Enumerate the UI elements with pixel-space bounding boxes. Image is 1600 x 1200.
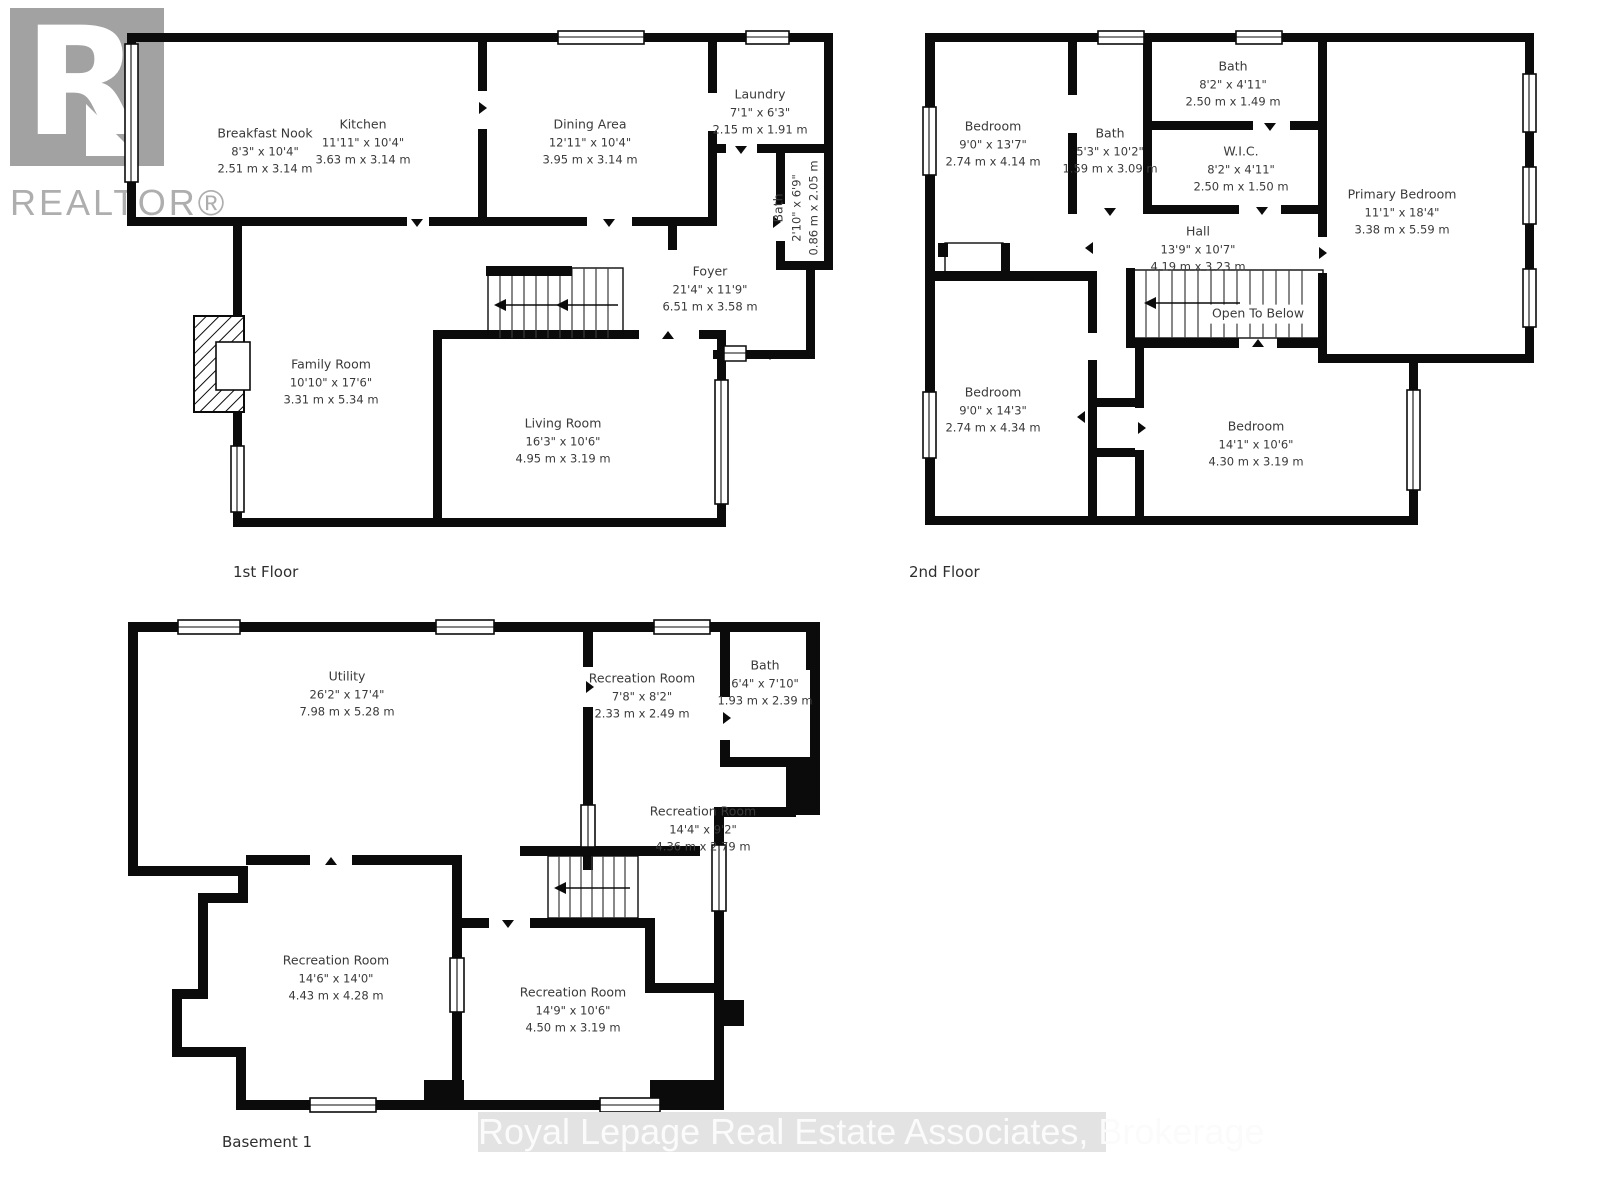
stairs-first-floor [486, 266, 623, 338]
room-label-family-room: Family Room 10'10" x 17'6" 3.31 m x 5.34… [283, 355, 378, 408]
caption-first-floor: 1st Floor [233, 563, 298, 581]
room-label-living-room: Living Room 16'3" x 10'6" 4.95 m x 3.19 … [515, 414, 610, 467]
basement-walls [128, 620, 820, 1112]
open-to-below-label: Open To Below [1208, 305, 1308, 324]
room-label-primary-bedroom: Primary Bedroom 11'1" x 18'4" 3.38 m x 5… [1348, 185, 1457, 238]
room-label-breakfast-nook: Breakfast Nook 8'3" x 10'4" 2.51 m x 3.1… [217, 124, 312, 177]
floorplan-page: R REALTOR® [0, 0, 1600, 1200]
room-label-rec-room-small: Recreation Room 7'8" x 8'2" 2.33 m x 2.4… [589, 669, 695, 722]
caption-basement: Basement 1 [222, 1133, 312, 1151]
brokerage-watermark: Royal Lepage Real Estate Associates, Bro… [478, 1112, 1106, 1152]
room-label-kitchen: Kitchen 11'11" x 10'4" 3.63 m x 3.14 m [315, 115, 410, 168]
room-label-bath-middle: Bath 5'3" x 10'2" 1.59 m x 3.09 m [1062, 124, 1157, 177]
room-label-dining-area: Dining Area 12'11" x 10'4" 3.95 m x 3.14… [542, 115, 637, 168]
room-label-wic: W.I.C. 8'2" x 4'11" 2.50 m x 1.50 m [1193, 142, 1288, 195]
room-label-rec-room-bottom: Recreation Room 14'9" x 10'6" 4.50 m x 3… [520, 983, 626, 1036]
room-label-bath-basement: Bath 6'4" x 7'10" 1.93 m x 2.39 m [717, 656, 812, 709]
room-label-laundry: Laundry 7'1" x 6'3" 2.15 m x 1.91 m [712, 85, 807, 138]
room-label-bath-top: Bath 8'2" x 4'11" 2.50 m x 1.49 m [1185, 57, 1280, 110]
room-label-rec-room-left: Recreation Room 14'6" x 14'0" 4.43 m x 4… [283, 951, 389, 1004]
room-label-bath-first: Bath 2'10" x 6'9" 0.86 m x 2.05 m [769, 160, 822, 255]
room-label-foyer: Foyer 21'4" x 11'9" 6.51 m x 3.58 m [662, 262, 757, 315]
room-label-bedroom-2: Bedroom 9'0" x 14'3" 2.74 m x 4.34 m [945, 383, 1040, 436]
room-label-rec-room-mid: Recreation Room 14'4" x 9'2" 4.36 m x 2.… [650, 802, 756, 855]
room-label-hall: Hall 13'9" x 10'7" 4.19 m x 3.23 m [1150, 222, 1245, 275]
closet-bedroom [938, 243, 1010, 275]
caption-second-floor: 2nd Floor [909, 563, 980, 581]
room-label-bedroom-3: Bedroom 14'1" x 10'6" 4.30 m x 3.19 m [1208, 417, 1303, 470]
room-label-utility: Utility 26'2" x 17'4" 7.98 m x 5.28 m [299, 667, 394, 720]
room-label-bedroom-1: Bedroom 9'0" x 13'7" 2.74 m x 4.14 m [945, 117, 1040, 170]
